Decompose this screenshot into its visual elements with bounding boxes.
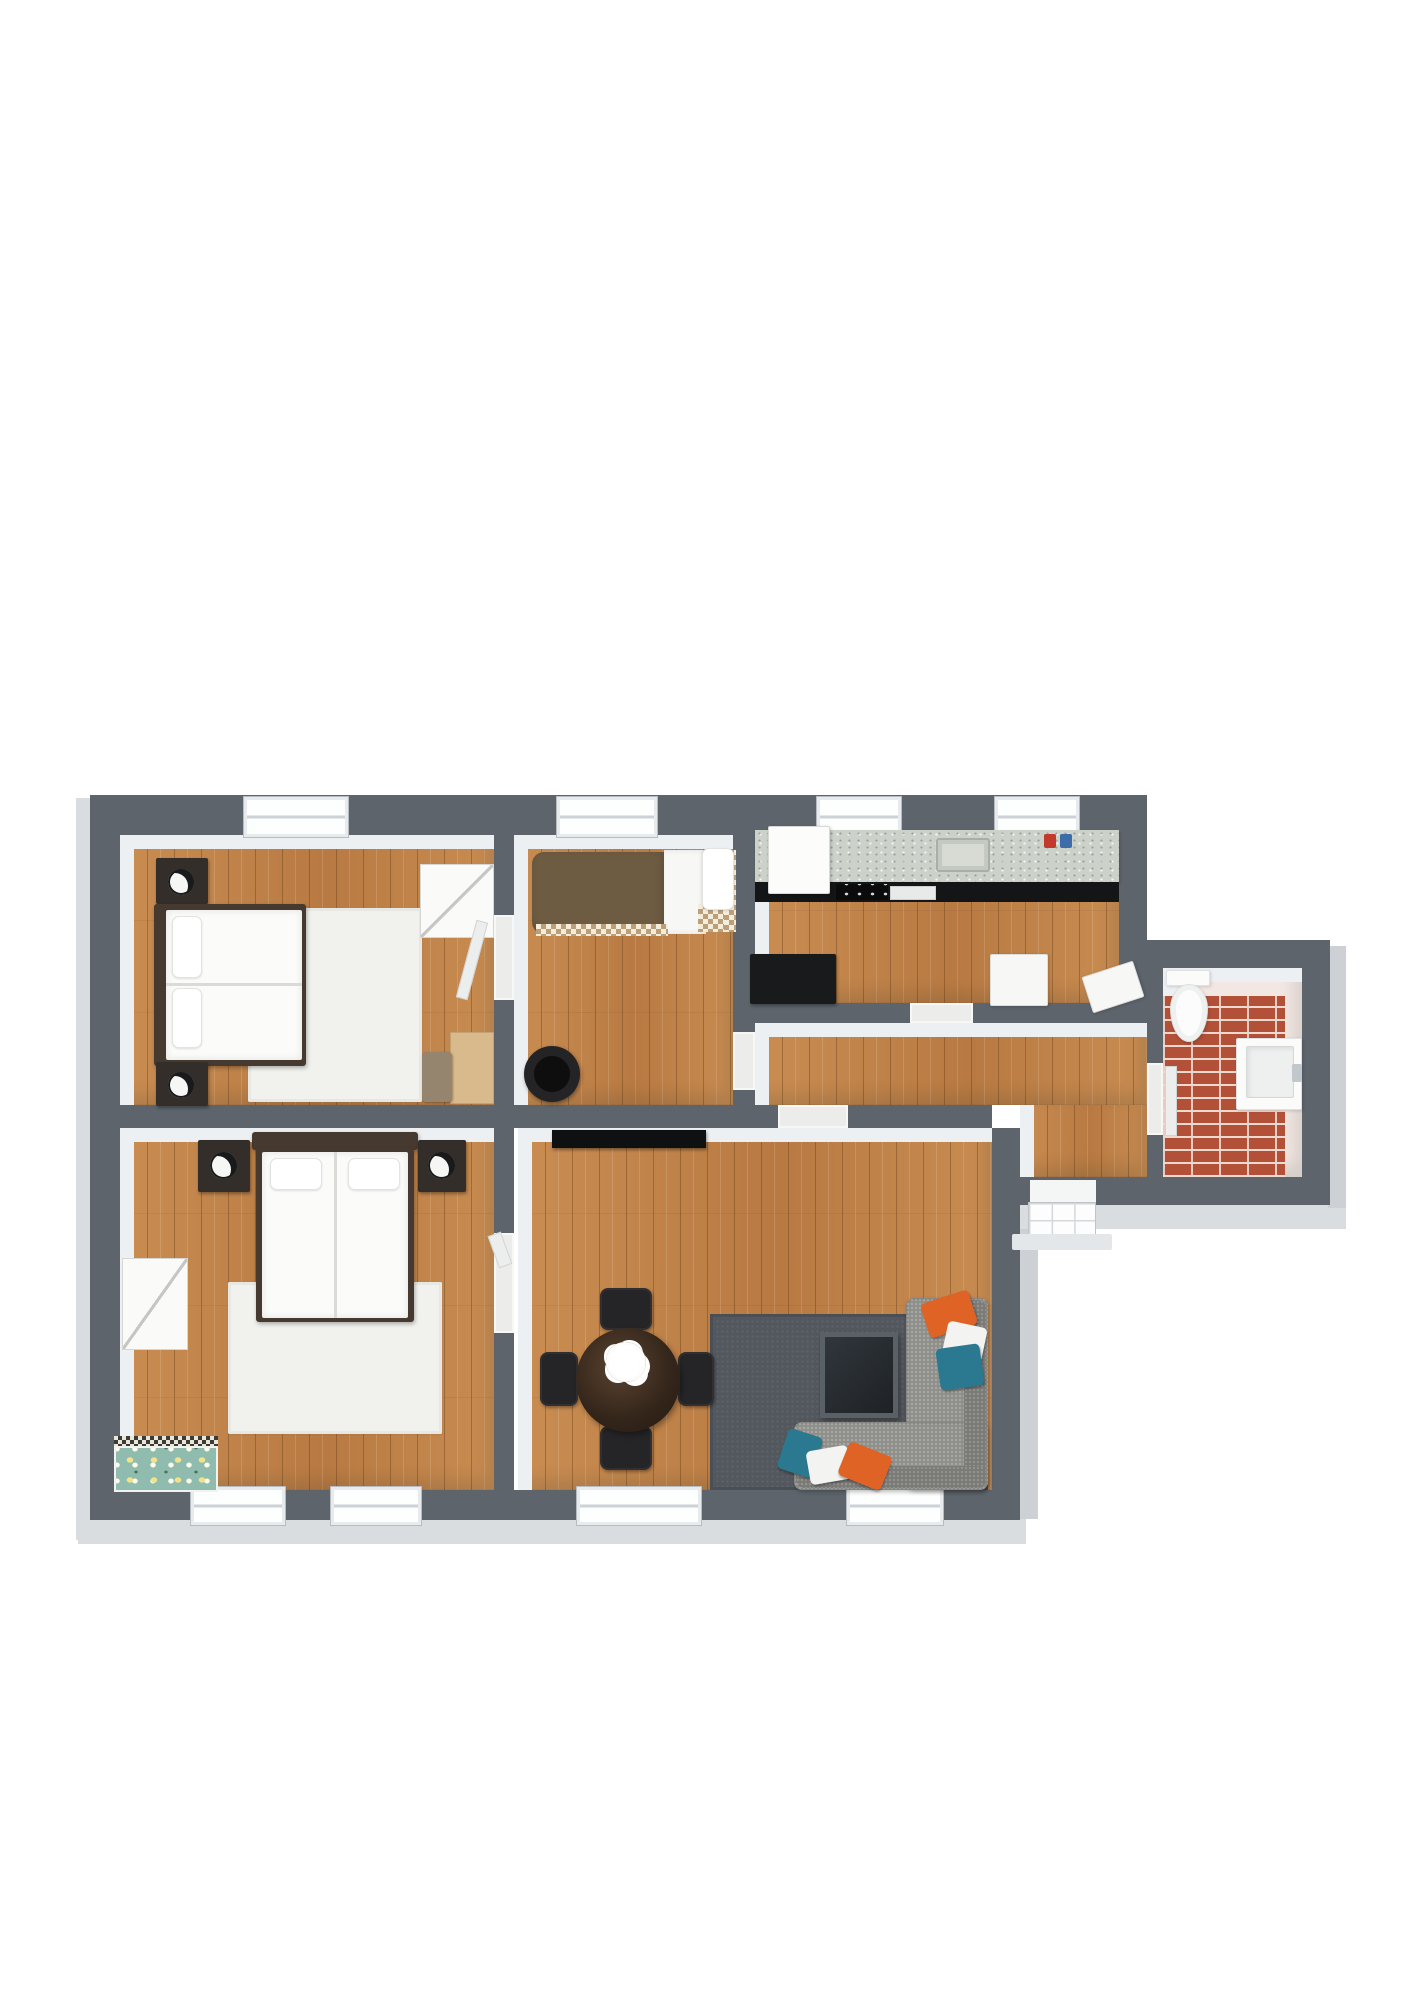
bedroom2-lamp-right [428,1152,455,1179]
bedroom2-lamp-left [210,1152,237,1179]
living-console [552,1130,706,1148]
window-middle-room [556,796,658,838]
bathroom-basin [1246,1046,1294,1098]
bathroom-faucet [1292,1064,1302,1082]
kitchen-fridge [768,826,830,894]
middle-bed-duvet [532,852,668,934]
outer-edge-bath-right [1328,946,1346,1208]
door-kitchen-hallway [910,1003,973,1023]
room-hallway-upper [755,1023,1147,1105]
door-living-hallway [778,1105,848,1128]
kitchen-jar-red [1044,834,1056,848]
wall-bathroom-door-upper [1147,968,1163,1063]
wall-middle-kitchen-stub [733,1090,755,1105]
bedroom2-bed-seam [334,1152,337,1318]
window-bedroom2-1 [190,1486,286,1526]
entry-step [1012,1234,1112,1250]
entry-door-leaf [1028,1202,1096,1236]
bedroom1-bed-seam [166,983,302,986]
dining-chair-right [678,1352,714,1406]
bedroom1-desk [450,1032,494,1104]
bedroom2-dresser [122,1258,188,1350]
floor-plan-canvas [0,0,1413,2000]
kitchen-table-black [750,954,836,1004]
door-middle-hallway [733,1032,755,1090]
bedroom1-lamp-bottom [168,1072,194,1098]
wall-divider-right [848,1105,992,1128]
wall-living-right [992,1128,1020,1520]
wall-bed2-living-lower [494,1333,514,1490]
bedroom2-bench-edge [114,1436,218,1446]
dining-chair-left [540,1352,578,1406]
dining-chair-top [600,1288,652,1330]
kitchen-table-white [990,954,1048,1006]
dining-chair-bottom [600,1426,652,1470]
window-living-2 [846,1486,944,1526]
dining-table-flowers [606,1342,646,1382]
bedroom2-floral-bench [114,1446,218,1492]
kitchen-dishwasher [890,886,936,900]
door-bathroom [1147,1063,1163,1135]
living-tv-panel [820,1332,898,1418]
entry-door-frame [1030,1180,1096,1204]
kitchen-jar-blue [1060,834,1072,848]
wall-kitchen-bottom-right [973,1003,1147,1023]
middle-bed-pillow [702,848,734,910]
room-hallway-entry [1020,1105,1147,1177]
bedroom2-pillow-2 [348,1158,400,1190]
bathroom-door-leaf [1165,1066,1177,1136]
bedroom2-pillow-1 [270,1158,322,1190]
window-bedroom1 [243,796,349,838]
wall-bathroom-right [1302,940,1330,1205]
bedroom1-lamp-top [168,869,194,895]
sofa-pillow-teal-top [935,1343,984,1391]
window-bedroom2-2 [330,1486,422,1526]
window-living-1 [576,1486,702,1526]
wall-bed1-middle-lower [494,1000,514,1105]
kitchen-stove [836,884,888,900]
wall-outer-left [90,795,120,1520]
middle-tub-chair-seat [534,1056,570,1092]
bedroom1-pillow-1 [172,916,202,978]
wall-bathroom-door-lower [1147,1135,1163,1177]
wall-kitchen-bottom-left [755,1003,910,1023]
bedroom1-desk-chair [422,1052,452,1102]
wall-bed2-living-upper [494,1128,514,1233]
wall-bed1-middle-upper [494,795,514,915]
kitchen-sink [936,838,990,872]
outer-edge-living-right [1020,1229,1038,1519]
bedroom1-pillow-2 [172,988,202,1048]
middle-bed-checker-strip [536,924,668,936]
wall-divider-left [120,1105,778,1128]
door-bedroom1-middle [494,915,514,1000]
